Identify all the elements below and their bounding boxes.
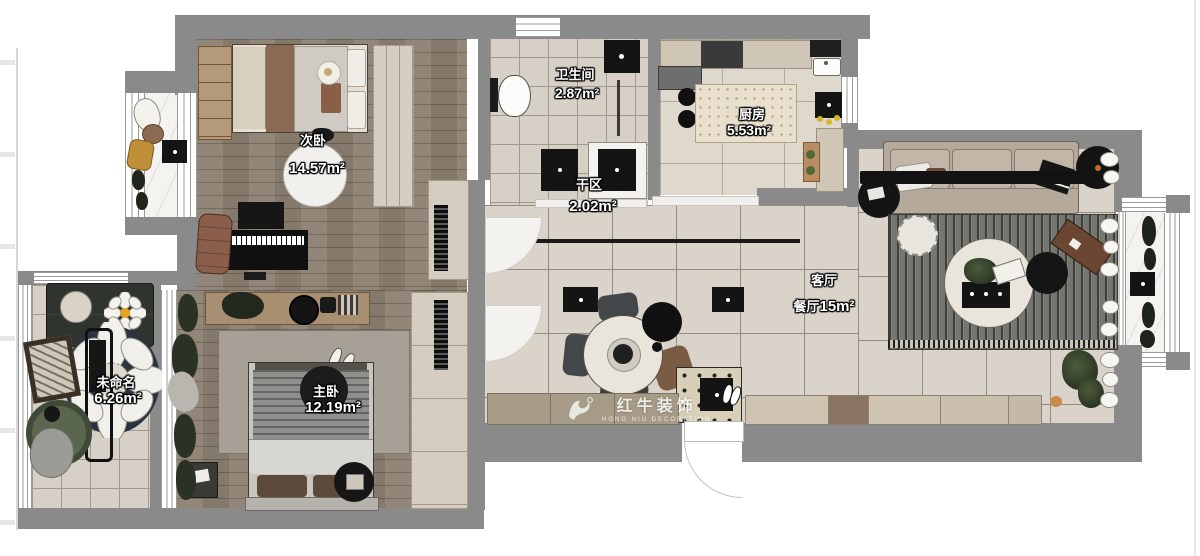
living-west-stub-wall bbox=[847, 130, 858, 207]
living-room-label: 客厅 bbox=[811, 270, 837, 289]
pebble-decor bbox=[1100, 152, 1119, 167]
kitchen-stove bbox=[815, 92, 842, 118]
pebble-decor bbox=[1100, 352, 1120, 368]
shoe-cabinet bbox=[1008, 395, 1042, 425]
balcony-right-bottom-cap bbox=[1166, 352, 1190, 370]
shoe-cabinet bbox=[868, 395, 942, 425]
pebble-decor bbox=[1100, 322, 1118, 337]
bedroom2-piano bbox=[228, 230, 308, 270]
master-shelf-plant bbox=[222, 292, 264, 319]
crescent-side-table bbox=[1026, 252, 1068, 294]
bedroom2-radiator bbox=[434, 205, 448, 271]
balcony-left-downlight bbox=[162, 140, 187, 163]
bath-kitchen-divider-wall bbox=[648, 28, 660, 200]
pebble-decor bbox=[1102, 372, 1119, 387]
bedroom2-west-wall bbox=[177, 217, 197, 290]
slab-line bbox=[0, 152, 15, 157]
dining-downlight bbox=[563, 287, 598, 312]
balcony-right-outer-window bbox=[1164, 213, 1180, 352]
bedroom2-wardrobe bbox=[198, 46, 232, 140]
kitchen-pot bbox=[678, 110, 696, 128]
balcony-right-top-window bbox=[1122, 197, 1166, 212]
balcony-right-vine bbox=[1140, 330, 1155, 348]
property-edge-line bbox=[1194, 0, 1196, 556]
master-radiator bbox=[434, 300, 448, 370]
shoe-cabinet bbox=[745, 395, 830, 425]
bottom-wall-right-segment bbox=[742, 423, 1142, 462]
vanity-basin-dot bbox=[619, 54, 624, 59]
dry-area-sink-left bbox=[541, 149, 578, 191]
kitchen-right-wall bbox=[841, 25, 858, 77]
bedroom2-stool bbox=[244, 272, 266, 280]
kitchen-faucet-dot bbox=[824, 61, 828, 65]
dry-area-dot bbox=[617, 185, 622, 190]
dining-plate bbox=[613, 344, 633, 364]
bed-pillow-brown bbox=[257, 475, 307, 497]
slab-line bbox=[0, 244, 15, 249]
kitchen-pot bbox=[678, 88, 696, 106]
shower-partition bbox=[617, 80, 620, 136]
bed-throw-pillow bbox=[321, 83, 341, 113]
kitchen-range-hood bbox=[810, 40, 841, 57]
balcony-left-top-wall bbox=[125, 71, 197, 93]
bathroom-label: 卫生间 bbox=[555, 64, 594, 83]
floor-plan: 次卧 14.57m² 卫生间 2.87m² 厨房 5.53m² 干区 2.02m… bbox=[0, 0, 1200, 556]
pebble-decor bbox=[1102, 300, 1119, 314]
bedroom2-area: 14.57m² bbox=[289, 160, 345, 177]
entry-corner-fruit bbox=[1050, 396, 1062, 407]
bed-pillow bbox=[347, 49, 366, 87]
unnamed-tray-table bbox=[60, 291, 92, 323]
dry-area-area: 2.02m² bbox=[569, 198, 617, 215]
shoe-cabinet bbox=[940, 395, 1010, 425]
entry-door-swing-arc bbox=[684, 440, 742, 498]
watermark-tagline: HONG NIU DECORATION bbox=[602, 417, 711, 423]
kitchen-area: 5.53m² bbox=[727, 122, 771, 138]
kitchen-cutting-board bbox=[803, 142, 820, 182]
balcony-right-downlight bbox=[1130, 272, 1155, 296]
kitchen-vegetable bbox=[806, 166, 815, 175]
kitchen-lemon bbox=[834, 115, 840, 121]
coffee-table-tray-dot bbox=[998, 292, 1002, 296]
ceiling-beam-line bbox=[527, 239, 800, 243]
bed-blanket-brown bbox=[266, 45, 294, 132]
bedroom2-armchair bbox=[195, 213, 233, 275]
coffee-table-tray-dot bbox=[970, 292, 974, 296]
shoe-cabinet-dark bbox=[828, 395, 870, 425]
balcony-right-vine bbox=[1142, 302, 1155, 328]
kitchen-right-window bbox=[841, 77, 858, 123]
kitchen-lemon bbox=[826, 119, 832, 125]
balcony-right-vine bbox=[1142, 216, 1156, 246]
entry-door-leaf bbox=[684, 421, 744, 442]
unnamed-left-window bbox=[18, 285, 32, 508]
balcony-right-top-cap bbox=[1166, 195, 1190, 213]
pebble-decor bbox=[1100, 262, 1119, 277]
slab-line bbox=[0, 60, 15, 65]
bull-logo-icon bbox=[565, 395, 595, 421]
slab-line bbox=[0, 520, 15, 525]
master-vanity-mirror bbox=[289, 295, 319, 325]
balcony-left-vine bbox=[136, 192, 148, 210]
pebble-decor bbox=[1100, 392, 1119, 408]
living-rug-fringe bbox=[888, 340, 1116, 348]
master-area: 12.19m² bbox=[305, 399, 361, 416]
bathroom-west-wall bbox=[478, 28, 490, 180]
bathroom-top-window bbox=[516, 17, 560, 37]
master-shelf-gadget bbox=[320, 297, 336, 313]
daisy-pillow-center bbox=[324, 68, 332, 76]
bedroom2-label: 次卧 bbox=[300, 130, 326, 149]
dining-room-label: 餐厅15m² bbox=[793, 296, 854, 316]
kitchen-top-counter bbox=[660, 40, 812, 69]
unnamed-room-area: 6.26m² bbox=[94, 390, 142, 407]
master-shelf-books bbox=[338, 295, 358, 315]
balcony-left-vine bbox=[132, 170, 145, 190]
dining-pendant-lamp bbox=[642, 302, 682, 342]
pebble-decor bbox=[1100, 218, 1119, 234]
bedroom2-closet-column bbox=[373, 45, 414, 207]
master-black-rug-photo bbox=[346, 474, 364, 490]
watermark-brand: 红牛装饰 bbox=[617, 392, 697, 416]
bottom-wall-left-segment bbox=[480, 423, 682, 462]
bed-pillow bbox=[347, 91, 366, 129]
bathroom-area: 2.87m² bbox=[555, 85, 599, 101]
watermark: 红牛装饰 HONG NIU DECORATION bbox=[565, 392, 711, 423]
piano-keys bbox=[232, 236, 304, 245]
pebble-decor bbox=[1103, 240, 1119, 254]
dry-area-label: 干区 bbox=[576, 174, 602, 193]
dining-room-name: 餐厅 bbox=[793, 299, 819, 314]
dry-area-dot bbox=[606, 185, 611, 190]
master-plant bbox=[174, 414, 196, 458]
bed-sheet bbox=[233, 47, 266, 129]
bedroom2-bed bbox=[232, 44, 368, 133]
living-room-area: 15m² bbox=[819, 298, 854, 315]
toilet-bowl bbox=[498, 75, 531, 117]
kitchen-threshold bbox=[652, 196, 759, 206]
kitchen-vegetable bbox=[806, 150, 815, 159]
slab-line bbox=[0, 336, 15, 341]
master-label: 主卧 bbox=[313, 381, 339, 400]
kitchen-lemon bbox=[817, 116, 823, 122]
hall-downlight bbox=[712, 287, 744, 312]
green-rug-dot bbox=[44, 406, 60, 422]
kitchen-side-cabinet bbox=[816, 128, 844, 192]
kitchen-label: 厨房 bbox=[739, 104, 765, 123]
bottom-left-wall bbox=[18, 508, 484, 529]
side-table-right-dot bbox=[1095, 165, 1101, 171]
bedroom2-tv bbox=[238, 202, 284, 229]
dining-pendant-lamp-small bbox=[652, 342, 662, 352]
master-plant bbox=[178, 294, 198, 332]
pebble-decor bbox=[1103, 170, 1120, 184]
coffee-table-tray-dot bbox=[984, 292, 988, 296]
watermark-text: 红牛装饰 HONG NIU DECORATION bbox=[602, 392, 711, 423]
toilet-cistern bbox=[490, 78, 498, 112]
slab-line bbox=[0, 428, 15, 433]
balcony-right-vine bbox=[1144, 248, 1156, 270]
unnamed-room-label: 未命名 bbox=[96, 372, 135, 391]
knit-pouf bbox=[897, 215, 938, 256]
sofa-back-console bbox=[860, 171, 1092, 184]
master-plant bbox=[176, 460, 196, 500]
